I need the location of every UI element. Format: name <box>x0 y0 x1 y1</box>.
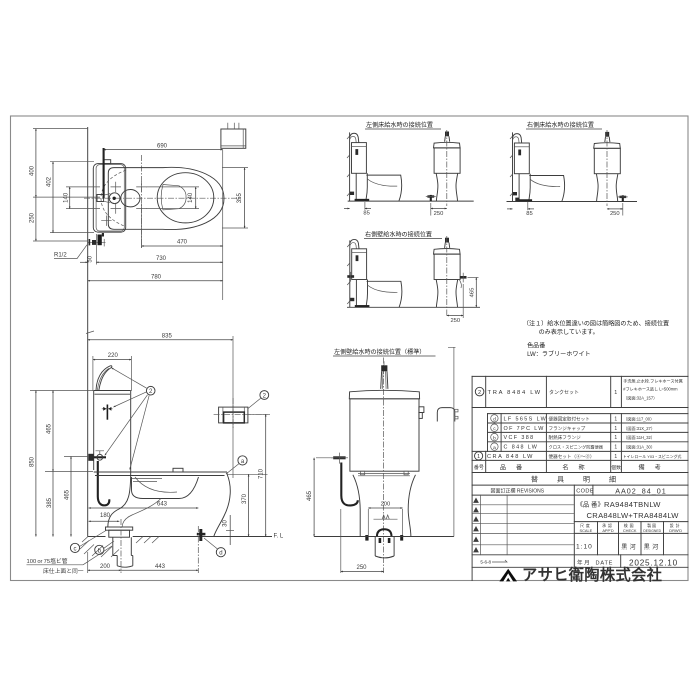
svg-text:b: b <box>493 435 496 441</box>
svg-text:a: a <box>493 446 496 451</box>
svg-text:備考: 備考 <box>639 463 671 471</box>
svg-text:図面訂正欄 REVISIONS: 図面訂正欄 REVISIONS <box>491 487 545 494</box>
svg-text:VCF 388: VCF 388 <box>504 435 535 441</box>
svg-text:5-6-8: 5-6-8 <box>480 560 491 565</box>
svg-text:RA9484TBNLW: RA9484TBNLW <box>604 500 661 509</box>
svg-text:クロス・スピニング防露便器: クロス・スピニング防露便器 <box>549 444 604 451</box>
svg-text:トイレロール Y03・スピニング式: トイレロール Y03・スピニング式 <box>623 454 682 459</box>
svg-text:CHECK: CHECK <box>623 528 637 533</box>
svg-text:品番: 品番 <box>500 464 532 471</box>
svg-text:443: 443 <box>155 564 166 570</box>
svg-text:（図面:31A_30）: （図面:31A_30） <box>623 445 655 450</box>
svg-text:LF 565S LW: LF 565S LW <box>504 416 548 422</box>
svg-text:R1/2: R1/2 <box>54 253 67 259</box>
svg-text:CRA848LW+TRA8484LW: CRA848LW+TRA8484LW <box>587 511 680 520</box>
svg-text:402: 402 <box>47 176 53 187</box>
svg-text:LW：ラブリーホワイト: LW：ラブリーホワイト <box>527 350 591 358</box>
svg-text:（図面:31X_27）: （図面:31X_27） <box>623 426 655 431</box>
svg-text:（図面:117_00）: （図面:117_00） <box>623 416 654 421</box>
svg-text:タンクセット: タンクセット <box>549 389 579 396</box>
svg-text:C 848 LW: C 848 LW <box>504 445 539 451</box>
svg-text:（図面:32A_157）: （図面:32A_157） <box>623 396 657 401</box>
svg-text:250: 250 <box>610 211 620 217</box>
svg-text:1: 1 <box>614 435 617 441</box>
svg-text:のみ表示しています。: のみ表示しています。 <box>539 328 599 336</box>
svg-text:470: 470 <box>177 240 188 246</box>
svg-text:SCALE: SCALE <box>580 528 593 533</box>
svg-text:CRA 848 LW: CRA 848 LW <box>487 454 534 460</box>
svg-text:1: 1 <box>477 454 480 460</box>
svg-text:CODE: CODE <box>576 489 594 495</box>
svg-text:F. L: F. L <box>274 534 284 540</box>
svg-text:30: 30 <box>223 520 229 527</box>
svg-text:50: 50 <box>87 255 93 262</box>
svg-text:200: 200 <box>381 502 391 508</box>
svg-text:780: 780 <box>151 274 162 280</box>
svg-text:OF 7PC LW: OF 7PC LW <box>504 426 545 432</box>
svg-text:465: 465 <box>64 489 70 500</box>
svg-text:DESIGNED: DESIGNED <box>643 529 661 533</box>
svg-text:アサヒ衛陶株式会社: アサヒ衛陶株式会社 <box>522 566 662 584</box>
svg-text:2: 2 <box>478 390 481 396</box>
svg-text:1: 1 <box>614 454 617 460</box>
svg-text:右側床給水時の接続位置: 右側床給水時の接続位置 <box>527 121 594 129</box>
svg-text:370: 370 <box>242 493 248 504</box>
svg-text:d: d <box>493 417 496 423</box>
svg-text:250: 250 <box>450 318 460 324</box>
svg-text:APP'D: APP'D <box>602 528 614 533</box>
svg-text:140: 140 <box>63 192 69 203</box>
svg-text:DRW'D: DRW'D <box>669 528 682 533</box>
svg-text:床仕上面と同一: 床仕上面と同一 <box>43 567 84 575</box>
svg-text:d: d <box>219 551 222 557</box>
svg-text:製図: 製図 <box>647 523 657 528</box>
svg-text:耐熱床フランジ: 耐熱床フランジ <box>549 434 582 441</box>
svg-text:100 or 75塩ビ管: 100 or 75塩ビ管 <box>27 557 68 565</box>
svg-text:250: 250 <box>434 211 444 217</box>
svg-text:730: 730 <box>156 256 167 262</box>
svg-text:835: 835 <box>162 333 173 339</box>
svg-text:1:10: 1:10 <box>576 544 593 551</box>
svg-text:c: c <box>74 546 77 552</box>
svg-text:手洗無.止水栓.フレキホース付属: 手洗無.止水栓.フレキホース付属 <box>623 378 682 384</box>
svg-text:690: 690 <box>157 144 168 150</box>
svg-text:AA02_84_01: AA02_84_01 <box>615 486 667 495</box>
svg-text:個数: 個数 <box>611 464 621 471</box>
svg-text:TRA 8484 LW: TRA 8484 LW <box>488 390 542 396</box>
svg-text:180: 180 <box>100 513 111 519</box>
svg-text:465: 465 <box>47 423 53 434</box>
svg-text:850: 850 <box>29 456 35 467</box>
svg-text:番号: 番号 <box>474 464 484 471</box>
svg-text:1: 1 <box>614 390 617 396</box>
svg-text:250: 250 <box>30 212 36 223</box>
svg-text:1: 1 <box>614 445 617 451</box>
svg-text:#フレキホース逃し L=500mm: #フレキホース逃し L=500mm <box>623 386 678 392</box>
svg-text:（注１）給水位置違いの図は簡略図のため、接続位置: （注１）給水位置違いの図は簡略図のため、接続位置 <box>523 320 669 328</box>
svg-text:色品番: 色品番 <box>527 342 545 350</box>
svg-text:140: 140 <box>188 192 194 203</box>
svg-text:200: 200 <box>100 564 111 570</box>
svg-text:（図面:11H_32）: （図面:11H_32） <box>623 435 655 440</box>
svg-text:左側壁給水時の接続位置（標準）: 左側壁給水時の接続位置（標準） <box>334 348 425 356</box>
svg-text:DATE: DATE <box>596 561 614 567</box>
svg-text:465: 465 <box>469 288 475 298</box>
svg-text:便器セット（ⓐ～ⓓ）: 便器セット（ⓐ～ⓓ） <box>549 453 595 460</box>
svg-text:黒河: 黒河 <box>621 543 638 551</box>
svg-text:替具明細: 替具明細 <box>531 475 635 484</box>
svg-text:便器固定取付セット: 便器固定取付セット <box>549 415 590 422</box>
svg-text:465: 465 <box>307 490 313 501</box>
svg-text:400: 400 <box>30 165 36 176</box>
svg-text:1: 1 <box>614 426 617 432</box>
svg-text:黒河: 黒河 <box>644 543 661 551</box>
svg-text:220: 220 <box>108 353 119 359</box>
svg-text:右側壁給水時の接続位置: 右側壁給水時の接続位置 <box>365 231 432 239</box>
svg-text:左側床給水時の接続位置: 左側床給水時の接続位置 <box>366 121 433 129</box>
svg-text:355: 355 <box>237 193 243 204</box>
svg-text:85: 85 <box>526 211 532 217</box>
svg-text:710: 710 <box>258 468 264 479</box>
svg-text:385: 385 <box>47 497 53 508</box>
svg-text:年月: 年月 <box>577 559 591 567</box>
svg-text:1: 1 <box>614 416 617 422</box>
svg-text:250: 250 <box>356 565 367 571</box>
svg-text:85: 85 <box>363 211 369 217</box>
svg-text:《品 番》: 《品 番》 <box>577 501 604 509</box>
svg-text:643: 643 <box>157 502 168 508</box>
svg-text:名称: 名称 <box>562 463 594 471</box>
